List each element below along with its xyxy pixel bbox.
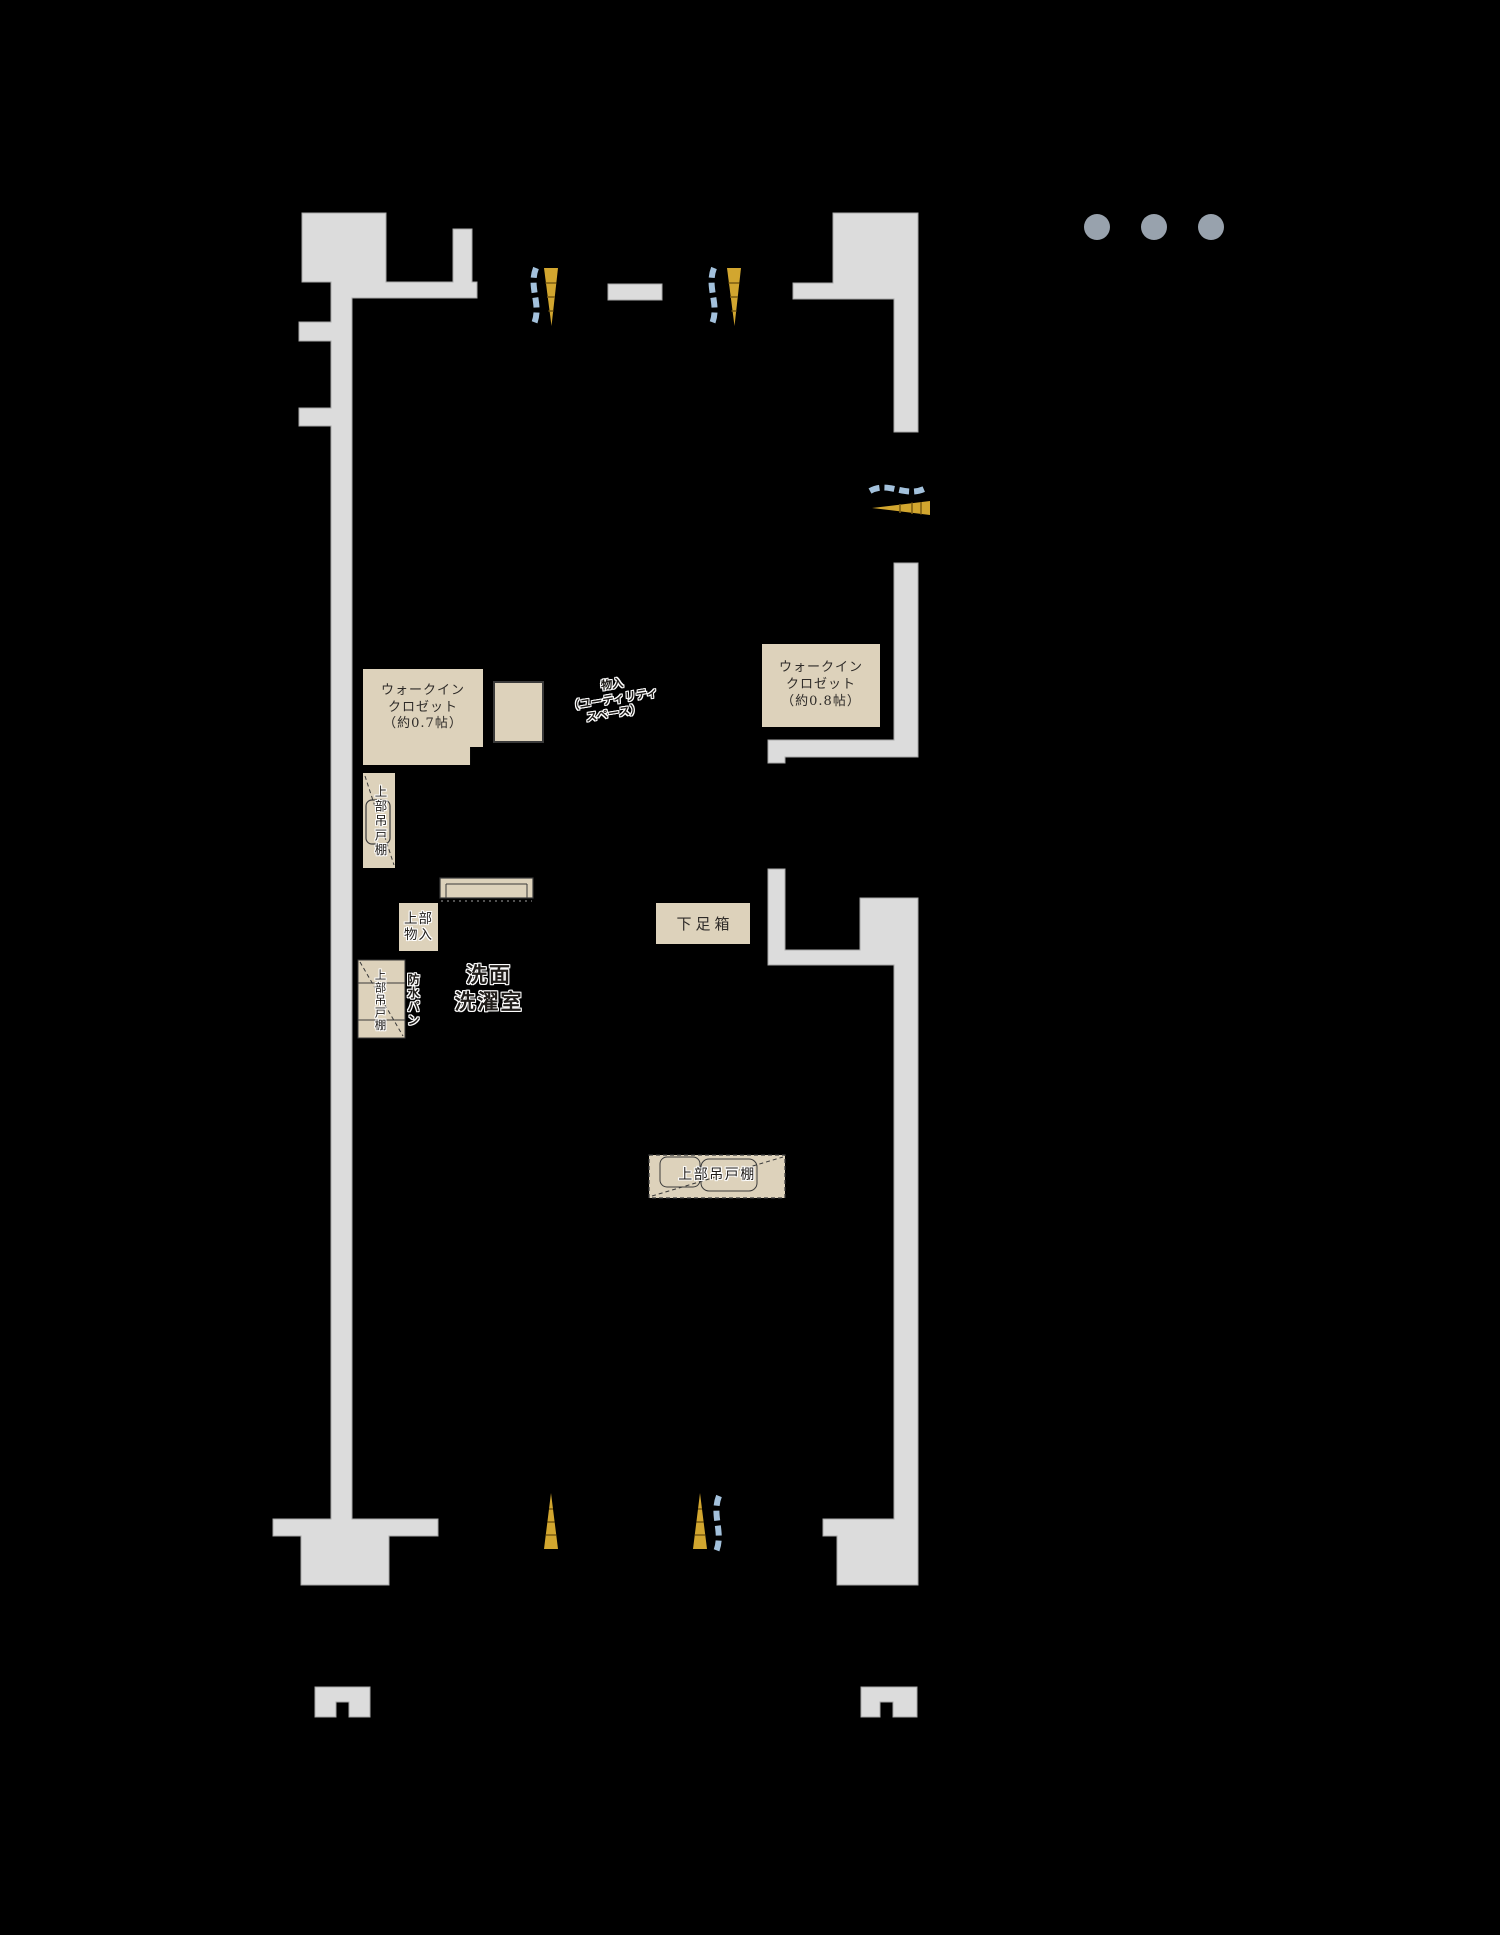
wall-top-middle-segment xyxy=(608,284,662,300)
window-bottom-left-icon xyxy=(544,1493,558,1549)
wall-right-mid-assembly xyxy=(768,563,918,763)
window-bottom-right-icon xyxy=(693,1493,719,1554)
vanity-fixture xyxy=(363,773,395,868)
wall-left-assembly xyxy=(273,213,477,1585)
carousel-dot-icon[interactable] xyxy=(1141,214,1167,240)
carousel-dot-icon[interactable] xyxy=(1084,214,1110,240)
kitchen-upper-shelf-fixture xyxy=(649,1155,785,1198)
window-top-right-icon xyxy=(711,268,741,326)
counter-fixture xyxy=(440,878,533,901)
window-top-left-icon xyxy=(533,268,558,326)
wall-top-right-assembly xyxy=(793,213,918,432)
wall-bottom-left-bracket xyxy=(315,1687,370,1717)
laundry-pan-fixture xyxy=(358,960,405,1038)
fixtures xyxy=(358,682,785,1198)
carousel-dot-icon[interactable] xyxy=(1198,214,1224,240)
carousel-dots xyxy=(1084,214,1224,240)
floor-plan-drawing xyxy=(0,0,1500,1935)
window-right-side-icon xyxy=(870,487,930,515)
floor-plan: ウォークイン クロゼット （約0.8帖） ウォークイン クロゼット （約0.7帖… xyxy=(0,0,1500,1935)
wall-bottom-right-bracket xyxy=(861,1687,917,1717)
wall-right-lower-assembly xyxy=(768,869,918,1585)
utility-storage-box xyxy=(494,682,543,742)
